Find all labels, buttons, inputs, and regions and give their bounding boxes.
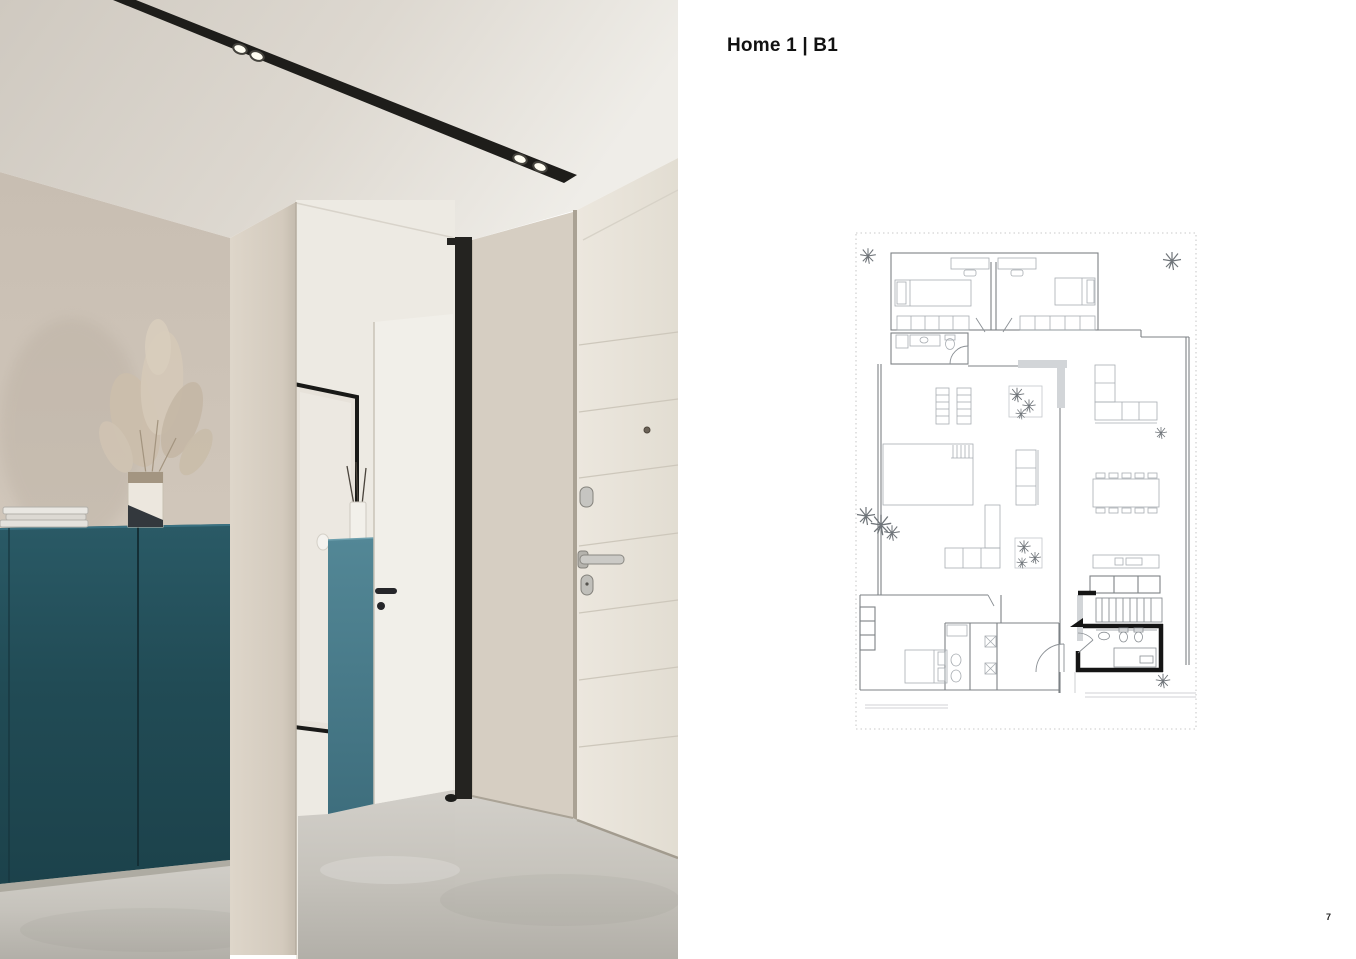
door-handle[interactable] bbox=[580, 555, 624, 564]
hallway-teal-cabinet[interactable] bbox=[328, 538, 374, 814]
security-latch[interactable] bbox=[580, 487, 593, 507]
interior-photo-art bbox=[0, 0, 678, 959]
dining-table bbox=[1093, 479, 1159, 507]
floor-plan bbox=[852, 232, 1198, 731]
hallway-door-keyhole bbox=[377, 602, 385, 610]
entry-door-wall bbox=[472, 158, 678, 858]
teal-sideboard[interactable] bbox=[0, 524, 230, 892]
bed bbox=[1055, 278, 1095, 305]
presentation-page: Home 1 | B1 bbox=[0, 0, 1356, 959]
bed bbox=[895, 280, 971, 306]
peephole bbox=[644, 427, 650, 433]
hallway-door-handle[interactable] bbox=[375, 588, 397, 594]
furniture bbox=[883, 258, 1159, 683]
magazine-stack bbox=[0, 507, 88, 527]
site-boundary bbox=[856, 233, 1196, 729]
floor-plan-art bbox=[852, 232, 1198, 731]
stair-bathroom-core bbox=[1070, 593, 1163, 672]
hatched-walls bbox=[1018, 360, 1083, 641]
interior-photo bbox=[0, 0, 678, 959]
master-bed bbox=[905, 650, 947, 683]
entrance-arrow bbox=[1070, 618, 1083, 627]
hallway-door[interactable] bbox=[374, 314, 453, 804]
wc-fixtures bbox=[1096, 628, 1157, 667]
staircase bbox=[1096, 598, 1162, 622]
vase bbox=[128, 472, 163, 527]
page-number: 7 bbox=[1326, 912, 1331, 922]
doors bbox=[950, 318, 1064, 672]
small-vase bbox=[317, 534, 329, 550]
door-stop bbox=[445, 794, 457, 802]
door-jamb bbox=[573, 210, 577, 820]
column bbox=[230, 202, 296, 955]
front-door[interactable] bbox=[577, 158, 678, 858]
page-title: Home 1 | B1 bbox=[727, 35, 838, 57]
